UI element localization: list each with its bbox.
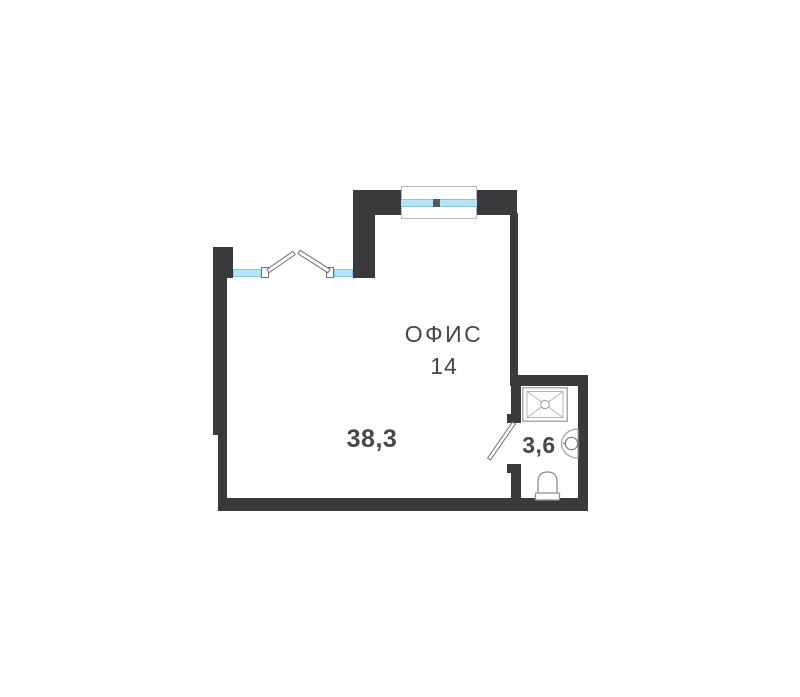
bathroom-area-label: 3,6: [506, 431, 572, 460]
room-number: 14: [394, 352, 494, 381]
toilet-icon: [536, 472, 560, 500]
shower-tray-icon: [523, 388, 568, 422]
room-name: ОФИС: [405, 321, 484, 347]
open-casement-left-icon: [267, 251, 295, 272]
open-casement-right-icon: [298, 250, 330, 272]
office-area-label: 38,3: [330, 424, 414, 455]
floor-plan: ОФИС 14 38,3 3,6: [0, 0, 800, 697]
room-label: ОФИС 14: [394, 320, 494, 381]
